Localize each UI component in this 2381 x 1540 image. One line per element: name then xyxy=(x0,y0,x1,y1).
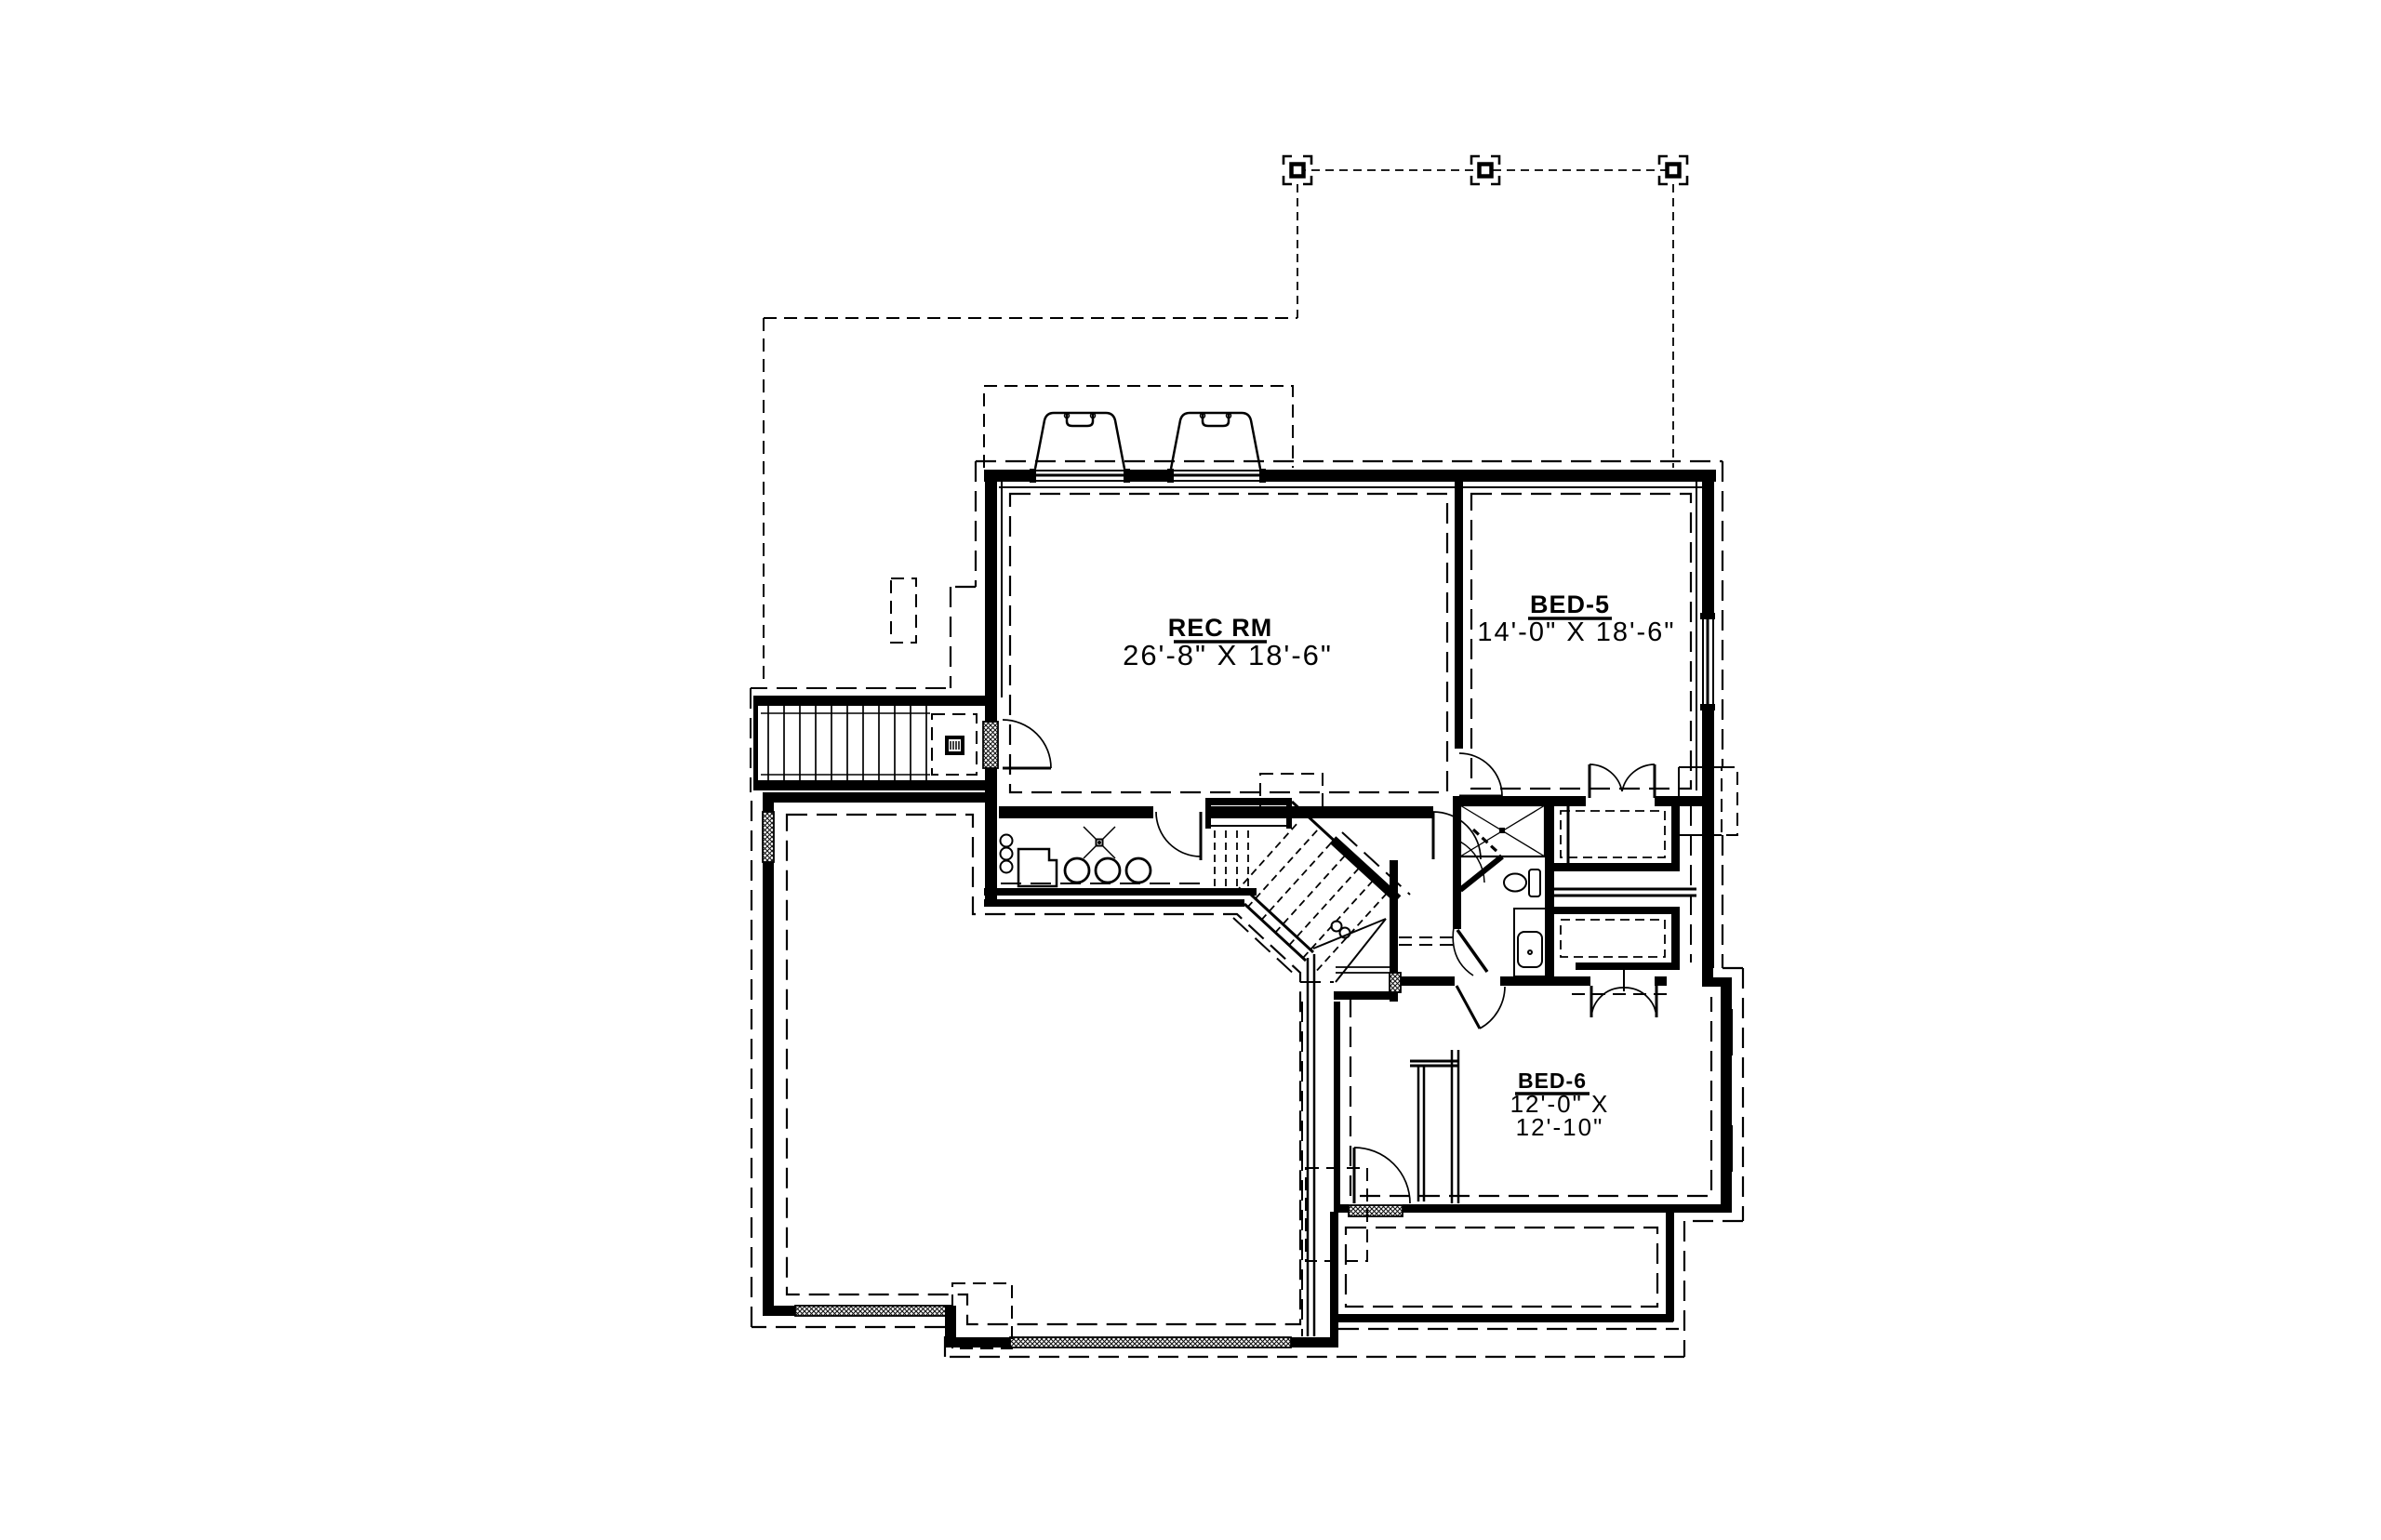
svg-text:BED-5: BED-5 xyxy=(1530,591,1610,618)
svg-text:14'-0" X 18'-6": 14'-0" X 18'-6" xyxy=(1477,617,1675,647)
svg-text:REC RM: REC RM xyxy=(1168,614,1273,642)
svg-text:26'-8" X 18'-6": 26'-8" X 18'-6" xyxy=(1123,639,1333,671)
svg-text:12'-10": 12'-10" xyxy=(1516,1113,1604,1141)
